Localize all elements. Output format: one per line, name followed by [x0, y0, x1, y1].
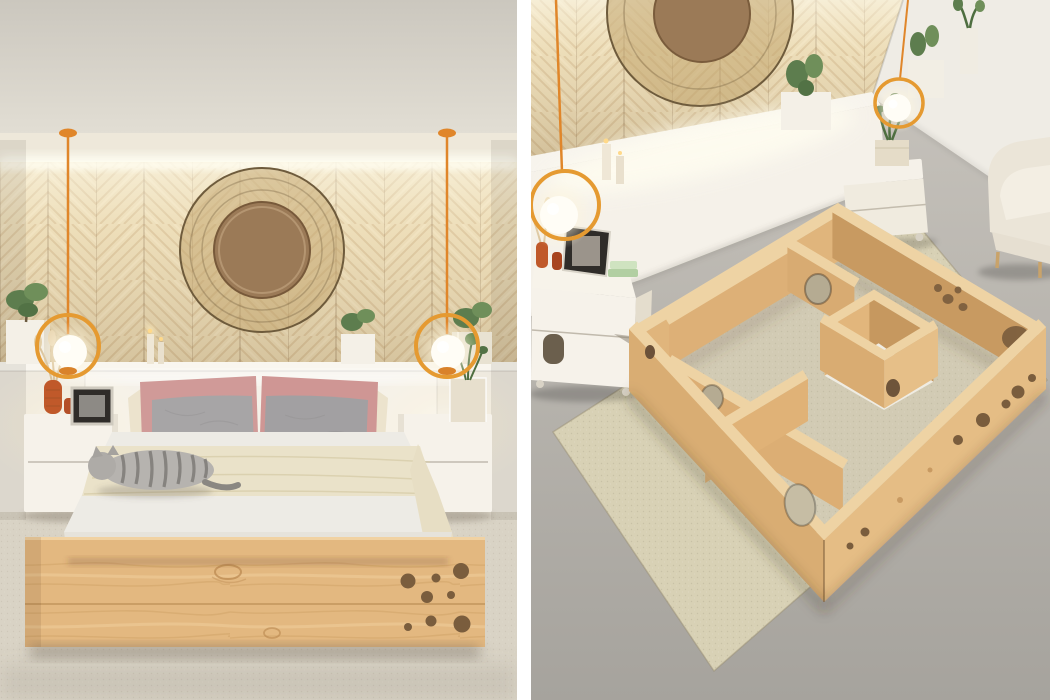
caster: [536, 380, 544, 388]
cat-hole: [645, 345, 655, 359]
lamp-globe: [53, 335, 87, 369]
decor-center-disc: [214, 202, 310, 298]
pine-bed-frame: [25, 537, 485, 647]
orange-vase: [552, 252, 562, 270]
green-book: [608, 269, 638, 277]
lamp-cup: [59, 367, 77, 375]
pendant-mount: [438, 129, 456, 138]
ceiling: [0, 0, 517, 135]
lamp-globe: [431, 335, 465, 369]
green-book: [610, 261, 637, 269]
pendant-mount: [59, 129, 77, 138]
round-rattan-wall-decor: [180, 168, 344, 332]
panel-divider: [517, 0, 531, 700]
caster: [622, 388, 630, 396]
lamp-globe: [883, 94, 911, 122]
orange-ribbed-vase: [44, 380, 62, 414]
scene: [0, 0, 1050, 700]
lamp-globe: [540, 196, 578, 234]
lamp-cup: [438, 367, 456, 375]
cactus-planter-b: [908, 25, 944, 98]
glass-planter: [450, 378, 486, 422]
wood-knot: [897, 497, 903, 503]
bed-shadow: [30, 645, 480, 658]
litter-door-opening: [543, 334, 564, 364]
cat-head: [88, 452, 116, 480]
render-collage: [0, 0, 1050, 700]
cat-hole: [805, 274, 831, 304]
wood-knot: [928, 468, 933, 473]
panel-left-bedroom: [0, 0, 537, 700]
panel-right-aerial-maze: [524, 0, 1050, 700]
cat-hole: [886, 379, 900, 397]
armchair-leg: [997, 252, 998, 268]
ledge-plant-center-right: [341, 309, 375, 364]
